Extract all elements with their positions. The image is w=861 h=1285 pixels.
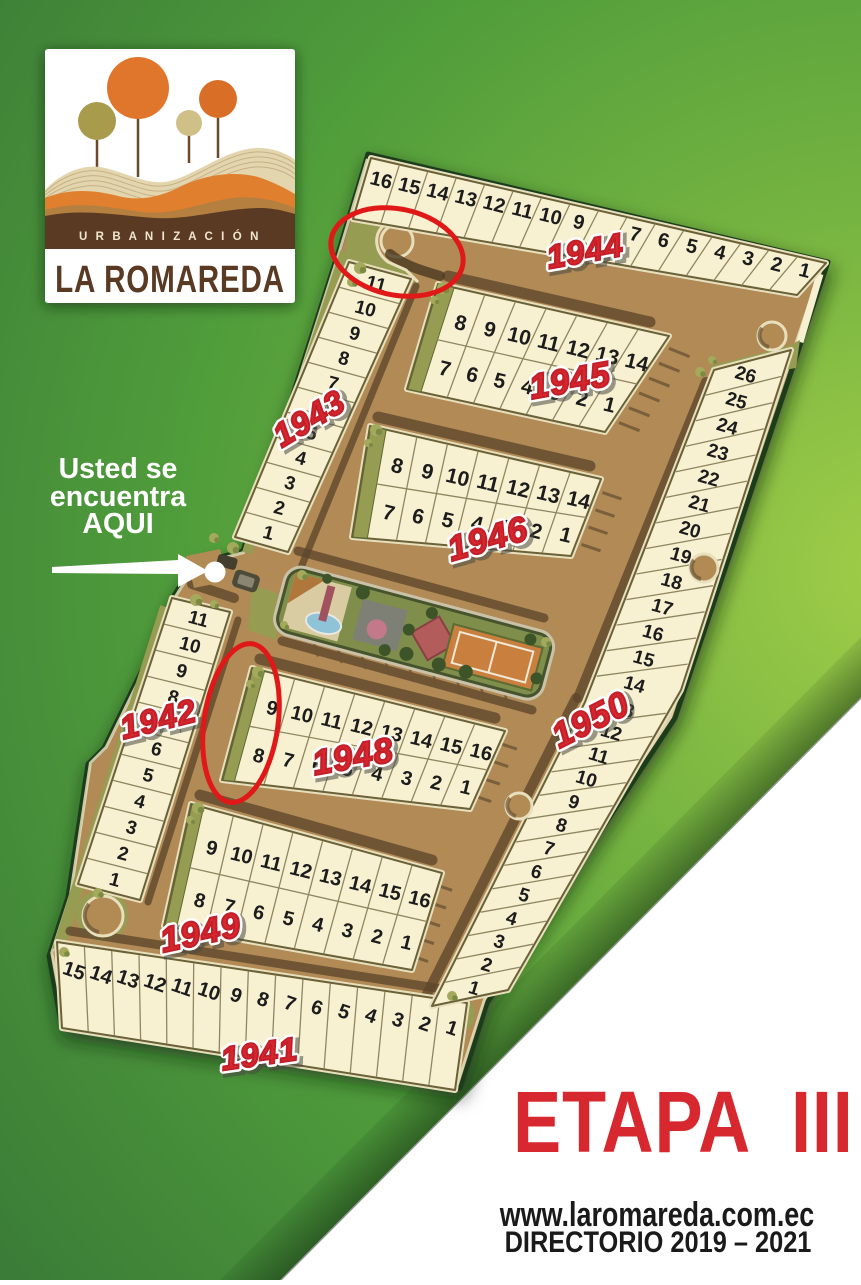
svg-text:LA ROMAREDA: LA ROMAREDA <box>55 259 285 301</box>
svg-text:U R B A N I Z A C I Ó N: U R B A N I Z A C I Ó N <box>79 230 261 243</box>
svg-text:DIRECTORIO 2019 – 2021: DIRECTORIO 2019 – 2021 <box>505 1225 812 1258</box>
svg-text:AQUI: AQUI <box>82 508 153 540</box>
svg-text:ETAPAIII: ETAPAIII <box>513 1074 854 1171</box>
